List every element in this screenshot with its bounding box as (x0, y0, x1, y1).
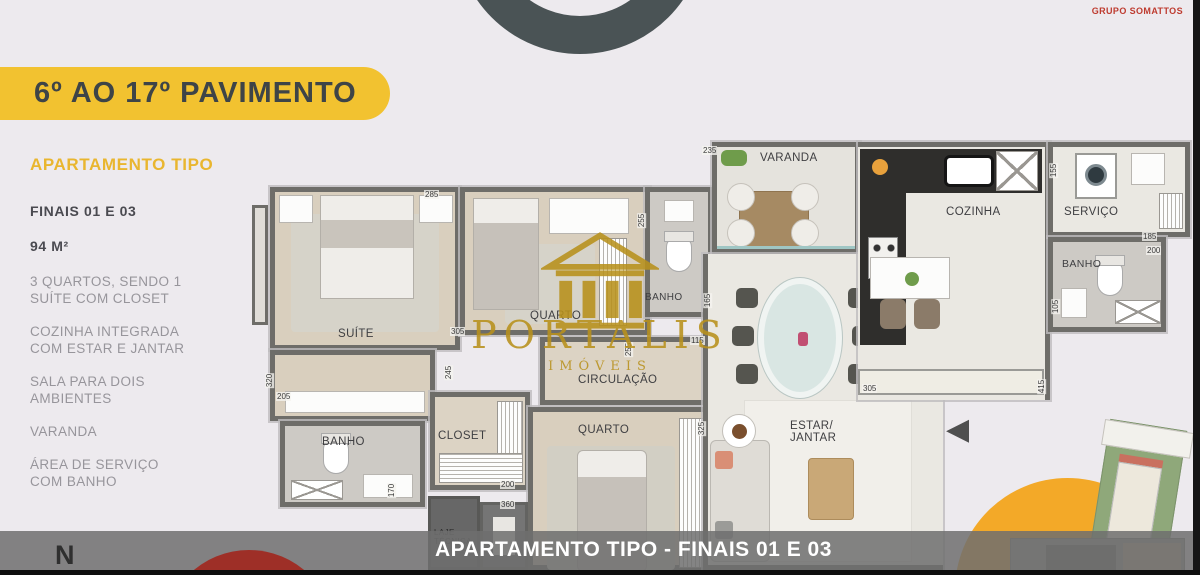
plant-icon (732, 424, 747, 439)
fruit-bowl-icon (872, 159, 888, 175)
feature-item: ÁREA DE SERVIÇO COM BANHO (30, 456, 265, 490)
nightstand-icon (279, 195, 313, 223)
bottom-edge-strip (0, 570, 1200, 575)
dim-label: 105 (1051, 299, 1060, 314)
facade-ledge (252, 205, 268, 325)
floor-banner: 6º AO 17º PAVIMENTO (0, 67, 390, 120)
feature-item: VARANDA (30, 423, 265, 440)
dim-label: 285 (424, 190, 439, 199)
watermark-name: PORTALIS (450, 313, 750, 357)
cabinet-icon (1159, 193, 1183, 229)
room-label-servico: SERVIÇO (1064, 206, 1118, 218)
chair-icon (791, 219, 819, 247)
sink-icon (1061, 288, 1087, 318)
dim-label: 200 (500, 480, 515, 489)
flowers-icon (798, 332, 808, 346)
room-servico (1048, 142, 1190, 237)
room-label-suite: SUÍTE (338, 328, 374, 340)
washer-door-icon (1085, 164, 1107, 186)
room-suite (270, 187, 460, 350)
north-indicator: N (55, 540, 75, 571)
plant-icon (721, 150, 747, 166)
chair-icon (791, 183, 819, 211)
room-label-banho-servico: BANHO (1062, 258, 1101, 270)
entrance-arrow-icon: ◀ (946, 415, 969, 445)
shower-icon (1115, 300, 1161, 324)
wardrobe-icon (497, 401, 523, 457)
dim-label: 185 (1142, 232, 1157, 241)
watermark-tagline: IMÓVEIS (450, 359, 750, 374)
stool-icon (880, 299, 906, 329)
dim-label: 200 (1146, 246, 1161, 255)
sink-icon (1131, 153, 1165, 185)
finals-label: FINAIS 01 E 03 (30, 203, 265, 219)
brand-label: GRUPO SOMATTOS (1092, 6, 1183, 16)
room-label-varanda: VARANDA (760, 152, 818, 164)
dim-label: 255 (637, 213, 646, 228)
kitchen-sink-icon (944, 155, 994, 187)
room-label-quarto-2: QUARTO (578, 424, 629, 436)
room-label-estar: ESTAR/ JANTAR (790, 420, 836, 444)
nightstand-icon (419, 195, 453, 223)
dim-label: 325 (697, 421, 706, 436)
window-icon (291, 480, 343, 500)
room-label-cozinha: COZINHA (946, 206, 1001, 218)
dim-label: 360 (500, 500, 515, 509)
dim-label: 305 (862, 384, 877, 393)
site-road (1101, 419, 1194, 459)
right-edge-strip (1193, 0, 1200, 575)
apartment-type-title: APARTAMENTO TIPO (30, 155, 265, 175)
decorative-ring (455, 0, 705, 54)
watermark: PORTALIS IMÓVEIS (450, 232, 750, 374)
footer-bar: APARTAMENTO TIPO - FINAIS 01 E 03 (0, 531, 1200, 570)
room-banho-suite (280, 421, 425, 507)
dim-label: 320 (265, 373, 274, 388)
pantry-icon (996, 151, 1038, 191)
feature-item: SALA PARA DOIS AMBIENTES (30, 373, 265, 407)
suite-desk-nook (270, 350, 435, 421)
room-label-circulacao: CIRCULAÇÃO (578, 374, 657, 386)
room-cozinha (858, 142, 1050, 400)
dining-table-icon (758, 278, 842, 398)
dim-label: 205 (276, 392, 291, 401)
banner-title: 6º AO 17º PAVIMENTO (34, 77, 357, 110)
kitchen-lower-counter-icon (858, 369, 1044, 395)
double-bed-icon (320, 195, 414, 299)
area-label: 94 M² (30, 238, 265, 254)
sink-icon (664, 200, 694, 222)
pillow-icon (715, 451, 733, 469)
desk-icon (285, 391, 425, 413)
island-icon (870, 257, 950, 299)
chair-icon (727, 183, 755, 211)
dim-label: 415 (1037, 379, 1046, 394)
dim-label: 170 (387, 483, 396, 498)
footer-caption: APARTAMENTO TIPO - FINAIS 01 E 03 (435, 538, 832, 562)
plant-icon (905, 272, 919, 286)
dim-label: 155 (1049, 163, 1058, 178)
room-label-closet: CLOSET (438, 430, 486, 442)
dim-label: 235 (702, 146, 717, 155)
feature-item: COZINHA INTEGRADA COM ESTAR E JANTAR (30, 323, 265, 357)
coffee-table-icon (808, 458, 854, 520)
sidebar: APARTAMENTO TIPO FINAIS 01 E 03 94 M² 3 … (30, 155, 265, 506)
room-label-banho-suite: BANHO (322, 436, 365, 448)
wardrobe-icon (439, 453, 523, 483)
desk-icon (549, 198, 629, 234)
stool-icon (914, 299, 940, 329)
side-table-icon (722, 414, 756, 448)
feature-item: 3 QUARTOS, SENDO 1 SUÍTE COM CLOSET (30, 273, 265, 307)
washer-icon (1075, 153, 1117, 199)
